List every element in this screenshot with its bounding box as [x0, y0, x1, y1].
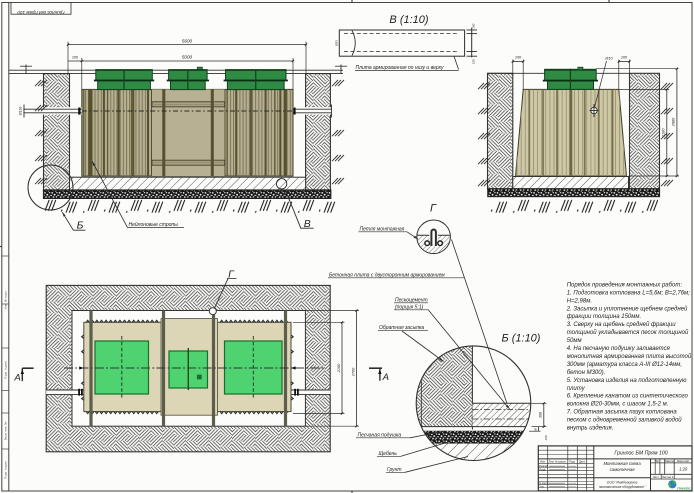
svg-text:7. Обратная засыпка пазух котл: 7. Обратная засыпка пазух котлована	[567, 410, 678, 416]
svg-text:Б: Б	[77, 219, 84, 231]
svg-text:300мм (арматура класса А-III Ø: 300мм (арматура класса А-III Ø12-14мм,	[567, 362, 682, 368]
svg-text:5. Установка изделия на подгот: 5. Установка изделия на подготовленную	[567, 378, 687, 384]
svg-text:Пров.: Пров.	[539, 467, 546, 471]
svg-text:Ø10: Ø10	[604, 57, 613, 61]
svg-text:Разраб.: Разраб.	[539, 464, 549, 468]
svg-text:100: 100	[621, 56, 628, 60]
svg-text:№ докум.: № докум.	[555, 461, 567, 464]
svg-text:Подп.: Подп.	[569, 460, 576, 464]
svg-text:4. На песчаную подушку заливае: 4. На песчаную подушку заливается	[567, 346, 671, 352]
svg-text:Гринлос БМ Прям 100: Гринлос БМ Прям 100	[17, 10, 65, 15]
svg-text:Г: Г	[430, 203, 437, 215]
svg-text:волокна Ø20-30мм, с шагом 1,5-: волокна Ø20-30мм, с шагом 1,5-2 м.	[567, 402, 669, 408]
svg-text:150: 150	[544, 435, 548, 440]
svg-text:фракции толщина 150мм.: фракции толщина 150мм.	[567, 314, 641, 320]
svg-text:толщиной укладывается песок то: толщиной укладывается песок толщиной	[567, 329, 689, 336]
svg-text:Подп. и дата: Подп. и дата	[4, 461, 8, 479]
svg-text:экологическое оборудование": экологическое оборудование"	[599, 485, 646, 489]
svg-text:самотечная: самотечная	[610, 467, 636, 472]
svg-text:300: 300	[539, 412, 543, 418]
svg-text:Утв.: Утв.	[539, 484, 544, 488]
svg-text:Монтажная схема: Монтажная схема	[603, 461, 641, 466]
svg-text:бетон М300).: бетон М300).	[567, 370, 606, 376]
svg-text:ГРИНЛОС: ГРИНЛОС	[677, 486, 691, 490]
svg-text:6. Крепление канатом из синтет: 6. Крепление канатом из синтетического	[567, 394, 689, 400]
svg-text:ООО "Инжбиоценоз: ООО "Инжбиоценоз	[607, 480, 638, 484]
svg-text:Подп. и дата: Подп. и дата	[4, 361, 8, 379]
svg-text:монолитная армированная плита: монолитная армированная плита высотой	[567, 353, 692, 360]
svg-text:Н.контр.: Н.контр.	[539, 481, 549, 485]
svg-text:50: 50	[533, 428, 537, 432]
svg-text:Ø25: Ø25	[335, 40, 339, 47]
svg-text:5600: 5600	[182, 38, 193, 43]
svg-text:100: 100	[72, 56, 79, 60]
svg-text:100: 100	[515, 56, 522, 60]
svg-text:1:20: 1:20	[679, 467, 688, 472]
svg-text:А: А	[382, 372, 389, 383]
svg-text:внутрь изделия.: внутрь изделия.	[567, 426, 614, 432]
svg-text:А: А	[13, 373, 20, 384]
svg-text:2980: 2980	[672, 117, 676, 127]
svg-text:В: В	[304, 218, 311, 230]
svg-text:Б (1:10): Б (1:10)	[502, 333, 541, 345]
svg-text:1. Подготовка котлована L=5,6м: 1. Подготовка котлована L=5,6м; B=2,76м;	[567, 290, 690, 296]
svg-text:2. Засыпка и уплотнение щебнем: 2. Засыпка и уплотнение щебнем средней	[566, 305, 688, 312]
svg-text:Масштаб: Масштаб	[677, 459, 689, 463]
svg-text:2160: 2160	[337, 363, 341, 373]
svg-text:5000: 5000	[182, 55, 193, 60]
svg-text:Н=2,98м.: Н=2,98м.	[567, 298, 592, 304]
svg-text:Листов 1: Листов 1	[662, 475, 674, 479]
svg-text:100: 100	[472, 23, 476, 28]
svg-text:Изм.: Изм.	[540, 460, 546, 464]
svg-text:плиту: плиту	[567, 386, 586, 392]
svg-text:Взам. инв. №: Взам. инв. №	[4, 421, 8, 440]
svg-text:песком с одновременной заливко: песком с одновременной заливкой водой	[567, 417, 683, 424]
svg-text:Лист: Лист	[653, 475, 660, 479]
svg-text:Лит.: Лит.	[655, 459, 660, 463]
svg-text:Гринлос БМ Прям 100: Гринлос БМ Прям 100	[614, 451, 667, 457]
svg-text:Масса: Масса	[665, 459, 674, 463]
svg-text:3. Сверху на щебень средней фр: 3. Сверху на щебень средней фракции	[567, 321, 677, 328]
svg-text:2760: 2760	[351, 367, 355, 377]
svg-text:Нейлоновые стропы: Нейлоновые стропы	[129, 221, 179, 228]
svg-text:50мм: 50мм	[567, 338, 582, 344]
svg-text:Дата: Дата	[579, 460, 585, 464]
svg-text:Ø110: Ø110	[18, 107, 22, 117]
svg-text:100: 100	[472, 59, 476, 64]
svg-text:Инв. № подл.: Инв. № подл.	[4, 290, 8, 309]
svg-text:Порядок проведения монтажных р: Порядок проведения монтажных работ:	[567, 282, 683, 288]
svg-text:В (1:10): В (1:10)	[389, 14, 428, 26]
